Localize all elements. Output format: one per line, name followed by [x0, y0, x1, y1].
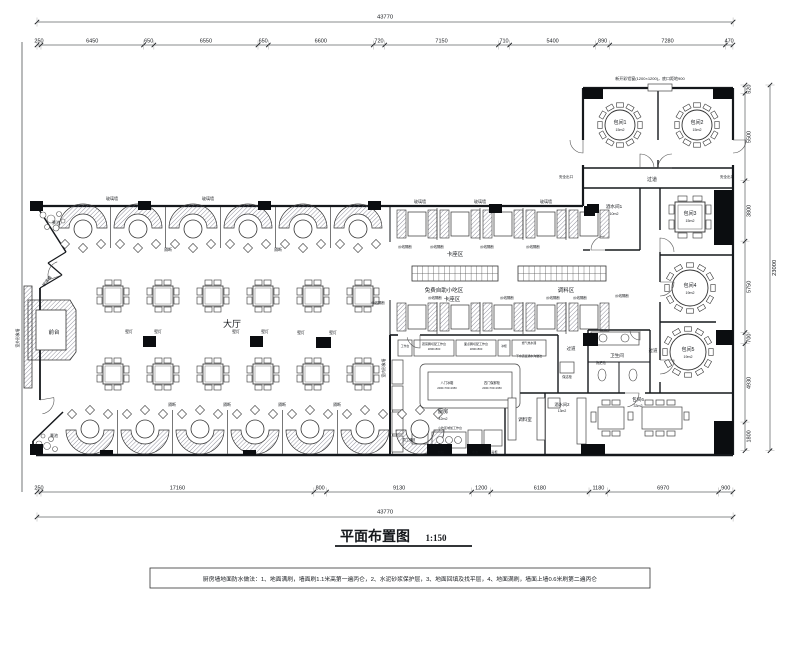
- chair: [195, 405, 204, 414]
- chair: [124, 366, 129, 373]
- plan-label: 包间4: [684, 282, 697, 289]
- bench: [397, 303, 406, 331]
- booth-table: [537, 305, 555, 329]
- chair: [164, 385, 171, 390]
- equipment: [656, 400, 664, 405]
- plan-label: 卡座区: [444, 295, 461, 303]
- plan-label: 下水道直通水沟做法: [516, 353, 542, 358]
- plan-label: 景池: [52, 219, 60, 225]
- chair: [324, 288, 329, 295]
- column: [714, 190, 733, 245]
- chair: [598, 122, 602, 129]
- plan-label: 蔬菜腌切配工作台: [422, 341, 446, 346]
- stone: [57, 212, 62, 217]
- plan-label: 隔断: [168, 402, 176, 407]
- dim-label: 6450: [86, 39, 98, 45]
- plan-label: 纱线隔断: [480, 244, 494, 249]
- chair: [264, 307, 271, 312]
- chair: [617, 143, 624, 147]
- chair: [364, 280, 371, 285]
- plan-label: 壁灯: [154, 329, 162, 334]
- chair: [151, 239, 160, 248]
- chair: [347, 366, 352, 373]
- chair: [703, 104, 711, 111]
- column: [30, 444, 43, 455]
- plan-label: 过道: [649, 347, 658, 354]
- square-table: [675, 202, 705, 232]
- square-table: [203, 364, 223, 384]
- plan-label: 燃气热水器: [522, 340, 537, 345]
- dim-label: 890: [598, 39, 607, 45]
- equipment: [684, 412, 689, 420]
- chair: [378, 409, 387, 418]
- chair: [711, 111, 718, 119]
- plan-label: 纱线隔断: [398, 244, 412, 249]
- plan-label: 纱线隔断: [546, 295, 560, 300]
- column: [716, 330, 733, 345]
- dim-label: 720: [374, 39, 383, 45]
- chair: [85, 405, 94, 414]
- square-table: [153, 364, 173, 384]
- dim-total-label: 43770: [377, 510, 393, 516]
- column: [583, 88, 603, 99]
- chair: [96, 239, 105, 248]
- equipment: [645, 400, 653, 405]
- chair: [147, 366, 152, 373]
- plan-label: 消毒柜: [488, 449, 497, 454]
- plan-label: 酒水间1: [606, 203, 623, 210]
- plan-label: 1800×800: [470, 347, 483, 351]
- plan-label: 玻璃墙: [540, 198, 552, 204]
- chair: [374, 366, 379, 373]
- bench: [483, 210, 492, 238]
- chair: [669, 220, 674, 229]
- chair: [174, 288, 179, 295]
- bench: [397, 210, 406, 238]
- plan-label: 1800×800: [428, 347, 441, 351]
- plan-label: 工作台: [401, 344, 410, 348]
- plan-label: 员工通道: [403, 437, 417, 442]
- dim-label: 5400: [546, 39, 558, 45]
- plan-label: 隔断: [223, 402, 231, 407]
- column: [30, 201, 43, 211]
- column: [368, 201, 381, 210]
- chair: [264, 280, 271, 285]
- door-swing: [570, 140, 583, 153]
- chair: [105, 385, 112, 390]
- chair: [703, 139, 711, 146]
- dim-label: 6550: [200, 39, 212, 45]
- drawing-title: 平面布置图: [340, 528, 410, 545]
- chair: [155, 280, 162, 285]
- booth-table: [494, 212, 512, 236]
- plan-label: 19m2: [686, 291, 695, 295]
- dim-label: 1180: [592, 486, 604, 492]
- chair: [214, 280, 221, 285]
- plan-label: 酒水间2: [555, 401, 571, 408]
- bench: [557, 303, 566, 331]
- chair: [687, 309, 694, 313]
- chair: [60, 239, 69, 248]
- plan-label: 纱线隔断: [500, 295, 514, 300]
- chair: [243, 243, 252, 252]
- chair: [374, 375, 379, 382]
- chair: [314, 280, 321, 285]
- bench: [600, 210, 609, 238]
- plan-label: 2000×700×1950: [437, 386, 457, 390]
- bench: [471, 303, 480, 331]
- chair: [250, 405, 259, 414]
- chair: [316, 239, 325, 248]
- chair: [324, 297, 329, 304]
- chair: [147, 297, 152, 304]
- chair: [105, 358, 112, 363]
- chair: [297, 375, 302, 382]
- chair: [140, 405, 149, 414]
- plan-label: 安全出口: [559, 174, 574, 179]
- dim-label: 710: [499, 39, 508, 45]
- booth-table: [451, 305, 469, 329]
- chair: [103, 409, 112, 418]
- booth-table: [301, 420, 319, 438]
- chair: [197, 366, 202, 373]
- bench: [569, 303, 578, 331]
- dim-label: 7150: [435, 39, 447, 45]
- square-table: [303, 286, 323, 306]
- plan-label: 隔断: [164, 247, 172, 252]
- booth-table: [191, 420, 209, 438]
- stone: [53, 447, 58, 452]
- chair: [305, 385, 312, 390]
- chair: [697, 264, 705, 271]
- plan-label: 包间6: [632, 396, 644, 403]
- equipment: [602, 431, 610, 436]
- chair: [672, 368, 680, 375]
- chair: [666, 295, 673, 303]
- chair: [364, 358, 371, 363]
- dim-label: 1800: [747, 430, 753, 442]
- chair: [683, 139, 691, 146]
- column: [143, 336, 156, 347]
- plan-label: 炒灶: [438, 449, 444, 454]
- chair: [666, 272, 673, 280]
- door-swing: [660, 238, 674, 252]
- equipment: [468, 430, 482, 446]
- stone: [45, 225, 50, 230]
- title-block: 平面布置图 1:150: [335, 528, 472, 546]
- bench: [428, 303, 437, 331]
- booth-table: [294, 220, 312, 238]
- plan-label: 15m2: [616, 128, 625, 132]
- walls-layer: [22, 42, 733, 492]
- chair: [683, 104, 691, 111]
- fixture: [621, 334, 629, 342]
- stone: [40, 212, 46, 218]
- column: [243, 450, 256, 455]
- plan-label: 前台: [48, 328, 60, 336]
- equipment: [508, 398, 516, 440]
- bench: [526, 210, 535, 238]
- column: [583, 333, 598, 346]
- chair: [324, 375, 329, 382]
- chair: [305, 280, 312, 285]
- booth-table: [408, 212, 426, 236]
- fixture: [437, 437, 444, 444]
- chair: [224, 297, 229, 304]
- chair: [170, 239, 179, 248]
- chair: [155, 358, 162, 363]
- chair: [704, 336, 711, 344]
- booth-table: [494, 305, 512, 329]
- chair: [264, 358, 271, 363]
- plan-label: 冰柜: [501, 344, 507, 348]
- chair: [124, 297, 129, 304]
- bench: [428, 210, 437, 238]
- plan-label: 厨房: [438, 407, 448, 415]
- dim-label: 470: [725, 39, 734, 45]
- chair: [133, 243, 142, 252]
- chair: [694, 143, 701, 147]
- chair: [261, 239, 270, 248]
- plan-label: 壁灯: [125, 329, 133, 334]
- column: [713, 88, 733, 99]
- chair: [685, 373, 692, 377]
- booth-table: [356, 420, 374, 438]
- door-swing: [640, 154, 654, 168]
- plan-label: 卫生间: [610, 352, 624, 359]
- equipment: [645, 431, 653, 436]
- plan-label: 调料区: [558, 286, 575, 294]
- chair: [213, 409, 222, 418]
- chair: [206, 239, 215, 248]
- dim-label: 6970: [657, 486, 669, 492]
- plan-label: 玻璃墙: [202, 195, 214, 201]
- square-table: [203, 286, 223, 306]
- equipment: [428, 372, 512, 400]
- square-table: [153, 286, 173, 306]
- chair: [606, 104, 614, 111]
- chair: [122, 409, 131, 418]
- equipment: [667, 431, 675, 436]
- chair: [224, 288, 229, 295]
- chair: [205, 385, 212, 390]
- equipment: [598, 407, 624, 429]
- plan-label: 室外形象墙: [15, 328, 20, 347]
- column: [250, 336, 263, 347]
- plan-label: 包间2: [691, 119, 704, 126]
- booth-table: [537, 212, 555, 236]
- plan-label: 壁灯: [261, 329, 269, 334]
- fixture: [446, 437, 453, 444]
- chair: [274, 288, 279, 295]
- plan-label: 纱线隔断: [526, 244, 540, 249]
- door-swing: [658, 154, 672, 168]
- chair: [305, 405, 314, 414]
- chair: [247, 288, 252, 295]
- chair: [663, 349, 667, 356]
- chair: [255, 358, 262, 363]
- dim-label: 650: [144, 39, 153, 45]
- chair: [114, 358, 121, 363]
- booth-table: [349, 220, 367, 238]
- furniture-layer: [36, 84, 719, 454]
- chair: [264, 385, 271, 390]
- chair: [678, 196, 687, 201]
- chair: [694, 103, 701, 107]
- stone: [41, 434, 45, 438]
- bench: [440, 210, 449, 238]
- plan-label: 壁灯: [232, 329, 240, 334]
- chair: [715, 122, 719, 129]
- chair: [347, 297, 352, 304]
- plan-label: 四门保鲜柜: [484, 380, 501, 385]
- plan-label: 纱线隔断: [615, 293, 629, 298]
- dim-total-label: 43770: [377, 15, 393, 21]
- chair: [706, 205, 711, 214]
- column: [584, 206, 595, 216]
- booth-table: [580, 305, 598, 329]
- dim-label: 5500: [747, 131, 753, 143]
- chair: [360, 405, 369, 414]
- bench: [471, 210, 480, 238]
- dim-label: 3800: [747, 205, 753, 217]
- square-table: [253, 286, 273, 306]
- chair: [214, 358, 221, 363]
- chair: [687, 263, 694, 267]
- floorplan-drawing: 玻璃墙玻璃墙玻璃墙玻璃墙玻璃墙玻璃墙景池景池前台室外形象墙室内形象墙大厅隔断隔断…: [0, 0, 800, 671]
- chair: [706, 272, 713, 280]
- chair: [124, 375, 129, 382]
- stone: [44, 443, 51, 450]
- note-block: 厨房墙地面防水做法：1、地面满刷，墙面刷1.1米高第一遍丙仑，2、水泥砂浆保护层…: [150, 568, 650, 588]
- column: [581, 444, 605, 455]
- plan-label: 安全出口: [720, 174, 735, 179]
- dim-label: 4930: [747, 377, 753, 389]
- equipment: [612, 400, 620, 405]
- chair: [672, 328, 680, 335]
- chair: [314, 307, 321, 312]
- bench: [440, 303, 449, 331]
- column: [316, 337, 331, 348]
- dim-total-label: 23000: [772, 260, 778, 276]
- chair: [97, 366, 102, 373]
- chair: [617, 103, 624, 107]
- booth-table: [239, 220, 257, 238]
- chair: [214, 385, 221, 390]
- chair: [706, 220, 711, 229]
- chair: [225, 239, 234, 248]
- chair: [706, 295, 713, 303]
- equipment: [560, 362, 574, 373]
- chair: [364, 385, 371, 390]
- toilet: [598, 369, 606, 381]
- plan-label: 保洁柜: [562, 374, 572, 379]
- chair: [255, 385, 262, 390]
- plan-label: 隔断: [333, 402, 341, 407]
- dim-label: 6180: [534, 486, 546, 492]
- dim-label: 900: [721, 486, 730, 492]
- chair: [704, 359, 711, 367]
- equipment: [591, 332, 639, 345]
- chair: [676, 111, 683, 119]
- equipment: [577, 398, 586, 444]
- chair: [664, 336, 671, 344]
- drawing-scale: 1:150: [426, 533, 447, 543]
- dim-label: 17160: [170, 486, 185, 492]
- chair: [297, 297, 302, 304]
- chair: [634, 131, 641, 139]
- chair: [371, 239, 380, 248]
- plan-label: 包间3: [684, 210, 697, 217]
- chair: [114, 280, 121, 285]
- plan-label: 15m2: [686, 219, 695, 223]
- plan-label: 大厅: [223, 318, 241, 329]
- cad-floorplan-viewport: { "title": {"text": "平面布置图", "scale": "1…: [0, 0, 800, 671]
- bench: [569, 210, 578, 238]
- chair: [693, 233, 702, 238]
- bench: [557, 210, 566, 238]
- square-table: [353, 286, 373, 306]
- plan-label: 八门冰箱: [441, 380, 455, 385]
- equipment: [392, 360, 403, 384]
- dim-label: 650: [259, 39, 268, 45]
- door-swing: [40, 398, 54, 414]
- equipment: [602, 400, 610, 405]
- chair: [347, 288, 352, 295]
- equipment: [392, 386, 403, 410]
- chair: [268, 409, 277, 418]
- booth-table: [74, 220, 92, 238]
- hatched-wall: [24, 286, 32, 388]
- chair: [693, 196, 702, 201]
- chair: [105, 280, 112, 285]
- plan-label: 室内形象墙: [381, 358, 386, 377]
- plan-label: 过道: [647, 176, 657, 183]
- chair: [280, 239, 289, 248]
- booth-table: [129, 220, 147, 238]
- chair: [664, 359, 671, 367]
- equipment: [628, 412, 633, 420]
- stone: [53, 225, 59, 231]
- plan-label: 隔断: [278, 402, 286, 407]
- dim-label: 9130: [393, 486, 405, 492]
- equipment: [498, 340, 510, 356]
- plan-label: 新开彩铝窗(1200×1200)，底口距地900: [615, 75, 685, 81]
- chair: [115, 239, 124, 248]
- chair: [335, 239, 344, 248]
- bench: [526, 303, 535, 331]
- chair: [676, 131, 683, 139]
- chair: [78, 243, 87, 252]
- bench: [514, 303, 523, 331]
- chair: [124, 288, 129, 295]
- chair: [247, 297, 252, 304]
- chair: [674, 264, 682, 271]
- chair: [158, 409, 167, 418]
- chair: [155, 385, 162, 390]
- plan-label: 隔断: [274, 247, 282, 252]
- equipment: [642, 407, 682, 429]
- chair: [638, 122, 642, 129]
- equipment: [398, 340, 412, 356]
- chair: [97, 297, 102, 304]
- door-swing: [733, 140, 746, 153]
- chair: [177, 409, 186, 418]
- plan-label: 水池: [472, 449, 478, 454]
- plan-label: 面点腌切配工作台: [464, 341, 488, 346]
- chair: [355, 385, 362, 390]
- booth-table: [451, 212, 469, 236]
